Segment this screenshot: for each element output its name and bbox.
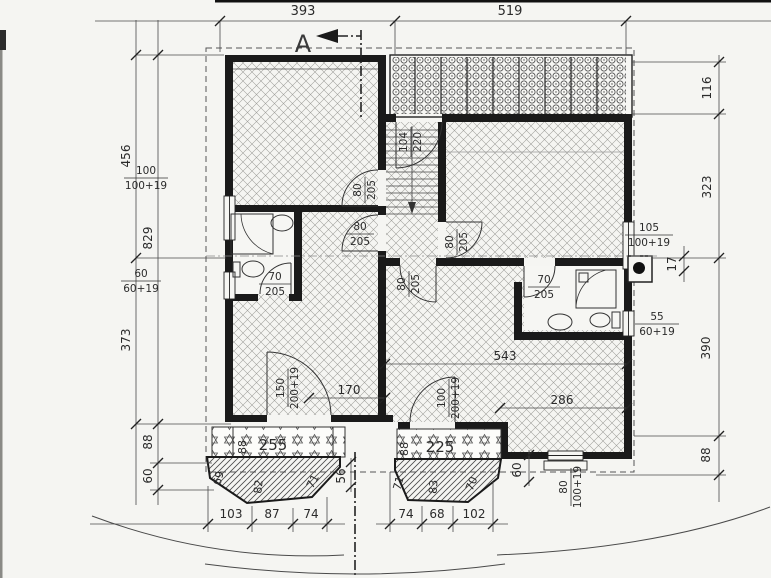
svg-text:373: 373 (119, 329, 133, 352)
section-marker-label: A (295, 30, 312, 58)
terrace (390, 55, 632, 117)
bay-right-window-label: 225 (426, 438, 455, 456)
bay-right-face-2: 83 (427, 479, 441, 494)
svg-text:80: 80 (444, 235, 456, 248)
window-label-left-upper: 100 100+19 (124, 165, 168, 192)
svg-text:150: 150 (275, 378, 287, 398)
svg-text:220: 220 (412, 132, 424, 152)
svg-text:100+19: 100+19 (572, 466, 584, 508)
bay-right-sill-label: 88 (398, 442, 411, 456)
svg-text:88: 88 (398, 442, 411, 456)
dim-interior-170: 170 (338, 383, 361, 397)
svg-text:80: 80 (352, 183, 364, 196)
svg-text:60: 60 (134, 268, 147, 280)
section-arrow (316, 29, 338, 43)
svg-text:56: 56 (334, 468, 348, 483)
dim-interior-60: 60 (510, 462, 524, 477)
svg-text:205: 205 (534, 289, 554, 301)
dim-right-2: 323 (700, 176, 714, 199)
svg-text:60+19: 60+19 (639, 326, 675, 338)
dim-top-2: 519 (498, 4, 523, 19)
svg-text:205: 205 (458, 232, 470, 252)
svg-text:80: 80 (353, 221, 366, 233)
window-label-left-lower: 60 60+19 (121, 268, 161, 295)
floor-plan-drawing: 393 519 456 829 373 88 60 116 323 17 390… (0, 0, 771, 578)
svg-text:100: 100 (436, 388, 448, 408)
svg-text:205: 205 (366, 180, 378, 200)
svg-text:80: 80 (558, 480, 570, 493)
dim-bottom-right-2: 68 (429, 507, 444, 521)
dim-top-1: 393 (291, 4, 316, 19)
window-label-right-lower: 55 60+19 (635, 311, 679, 338)
svg-text:105: 105 (639, 222, 659, 234)
dim-left-2: 829 (141, 227, 155, 250)
dim-right-5: 88 (699, 447, 713, 462)
dim-left-3: 373 (119, 329, 133, 352)
svg-text:17: 17 (665, 256, 679, 271)
svg-text:323: 323 (700, 176, 714, 199)
svg-text:104: 104 (398, 132, 410, 152)
dim-left-5: 60 (141, 468, 155, 483)
chimney-symbol (628, 256, 652, 282)
svg-text:456: 456 (119, 145, 133, 168)
dim-left-1: 456 (119, 145, 133, 168)
svg-text:116: 116 (700, 77, 714, 100)
svg-text:82: 82 (251, 479, 265, 494)
sill-bands (212, 427, 501, 459)
svg-text:88: 88 (236, 440, 249, 454)
svg-text:205: 205 (350, 236, 370, 248)
svg-text:200+19: 200+19 (289, 367, 301, 409)
dim-bottom-right-1: 74 (398, 507, 413, 521)
svg-text:200+19: 200+19 (450, 377, 462, 419)
dim-right-1: 116 (700, 77, 714, 100)
dim-left-4: 88 (141, 434, 155, 449)
svg-text:100+19: 100+19 (628, 237, 670, 249)
svg-text:60: 60 (510, 462, 524, 477)
svg-text:205: 205 (410, 274, 422, 294)
svg-text:70: 70 (268, 271, 281, 283)
bay-left-sill-label: 88 (236, 440, 249, 454)
bay-left-face-2: 82 (251, 479, 265, 494)
dim-bottom-right-3: 102 (463, 507, 486, 521)
svg-text:100: 100 (136, 165, 156, 177)
svg-text:55: 55 (650, 311, 663, 323)
dim-interior-543: 543 (494, 349, 517, 363)
svg-text:60+19: 60+19 (123, 283, 159, 295)
bay-left-window-label: 255 (259, 436, 288, 454)
svg-text:60: 60 (141, 468, 155, 483)
svg-text:80: 80 (396, 277, 408, 290)
bay-windows (207, 457, 501, 503)
dim-interior-56: 56 (334, 468, 348, 483)
dim-bottom-left-3: 74 (303, 507, 318, 521)
dim-interior-286: 286 (551, 393, 574, 407)
svg-text:100+19: 100+19 (125, 180, 167, 192)
floor-plan-scan: 393 519 456 829 373 88 60 116 323 17 390… (0, 0, 771, 578)
svg-text:829: 829 (141, 227, 155, 250)
dim-bottom-left-2: 87 (264, 507, 279, 521)
svg-text:390: 390 (699, 337, 713, 360)
dim-right-4: 390 (699, 337, 713, 360)
dim-right-3: 17 (665, 256, 679, 271)
svg-text:88: 88 (141, 434, 155, 449)
svg-text:83: 83 (427, 479, 441, 494)
svg-text:205: 205 (265, 286, 285, 298)
dim-bottom-left-1: 103 (220, 507, 243, 521)
svg-text:70: 70 (537, 274, 550, 286)
svg-text:88: 88 (699, 447, 713, 462)
